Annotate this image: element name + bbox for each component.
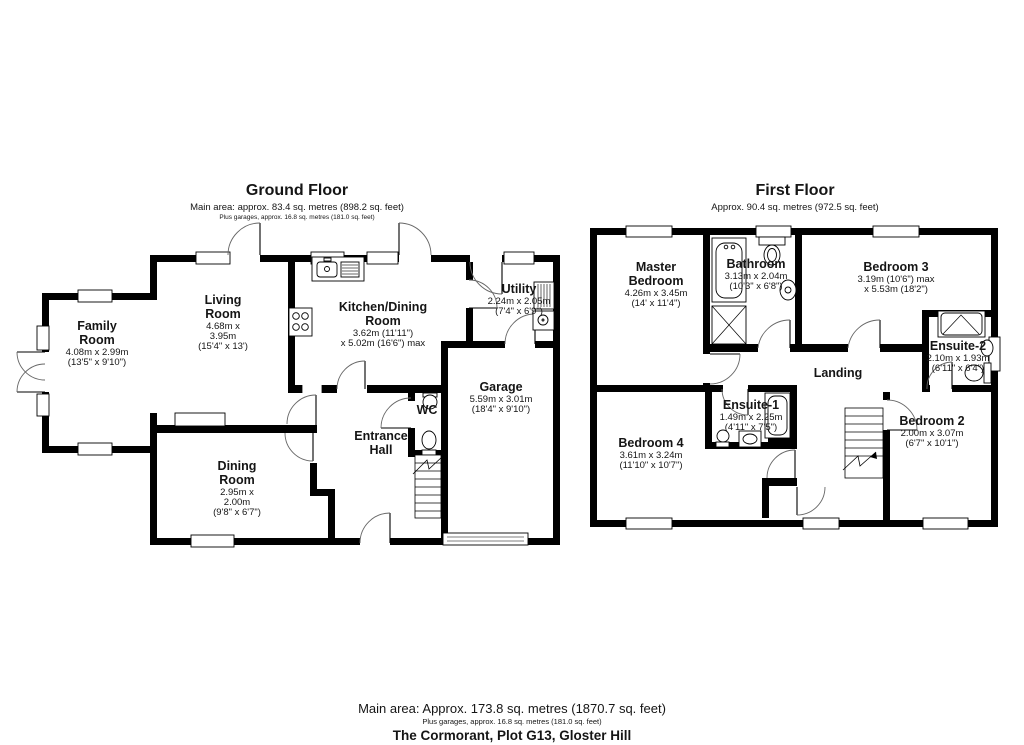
room-label-bedroom-2: Bedroom 2 2.00m x 3.07m (6'7" x 10'1") <box>862 415 1002 450</box>
hob-icon <box>289 308 312 336</box>
room-dims-imperial: (13'5" x 9'10") <box>62 358 132 368</box>
first-floor-subtitle: Approx. 90.4 sq. metres (972.5 sq. feet) <box>711 202 878 213</box>
room-name: Ensuite-2 <box>888 340 1024 354</box>
room-name: Bedroom 2 <box>862 415 1002 429</box>
room-dims-metric: 4.68m x 3.95m <box>193 322 253 343</box>
ground-floor-subtitle-small: Plus garages, approx. 16.8 sq. metres (1… <box>190 214 404 221</box>
room-dims-imperial: (7'4" x 6'9") <box>449 307 589 317</box>
room-dims-imperial: (14' x 11'4") <box>621 299 691 309</box>
room-label-ensuite-1: Ensuite-1 1.49m x 2.25m (4'11" x 7'5") <box>681 399 821 434</box>
room-dims-imperial: (4'11" x 7'5") <box>681 423 821 433</box>
room-name: Entrance Hall <box>350 430 412 458</box>
kitchen-sink-icon <box>312 257 364 281</box>
ground-floor-title: Ground Floor <box>190 182 404 200</box>
bathroom-shower-icon <box>712 306 746 344</box>
room-name: Dining Room <box>207 460 267 488</box>
room-label-family-room: Family Room 4.08m x 2.99m (13'5" x 9'10"… <box>62 320 132 368</box>
room-name: Utility <box>449 283 589 297</box>
room-name: Bedroom 3 <box>826 261 966 275</box>
room-dims-imperial: (6'11" x 6'4") <box>888 364 1024 374</box>
footer-property-name: The Cormorant, Plot G13, Gloster Hill <box>358 728 666 743</box>
room-name: Bathroom <box>686 258 826 272</box>
room-dims-metric: 2.95m x 2.00m <box>207 488 267 509</box>
room-name: Family Room <box>62 320 132 348</box>
room-name: WC <box>397 404 457 418</box>
room-name: Garage <box>431 381 571 395</box>
ground-floor-subtitle: Main area: approx. 83.4 sq. metres (898.… <box>190 202 404 213</box>
sideboard-icon <box>175 413 225 426</box>
room-label-landing: Landing <box>788 367 888 381</box>
garage-door-icon <box>443 533 528 545</box>
room-label-kitchen-dining-room: Kitchen/Dining Room 3.62m (11'11") x 5.0… <box>327 301 439 349</box>
room-label-ensuite-2: Ensuite-2 2.10m x 1.93m (6'11" x 6'4") <box>888 340 1024 375</box>
room-dims-imperial: (11'10" x 10'7") <box>581 461 721 471</box>
footer-garage-area: Plus garages, approx. 16.8 sq. metres (1… <box>358 717 666 726</box>
room-label-master-bedroom: Master Bedroom 4.26m x 3.45m (14' x 11'4… <box>621 261 691 309</box>
room-name: Bedroom 4 <box>581 437 721 451</box>
room-label-living-room: Living Room 4.68m x 3.95m (15'4" x 13') <box>193 294 253 353</box>
room-name: Ensuite-1 <box>681 399 821 413</box>
room-label-bathroom: Bathroom 3.13m x 2.04m (10'3" x 6'8") <box>686 258 826 293</box>
room-dims-imperial: (15'4" x 13') <box>193 342 253 352</box>
room-label-dining-room: Dining Room 2.95m x 2.00m (9'8" x 6'7") <box>207 460 267 519</box>
room-dims-imperial: (9'8" x 6'7") <box>207 508 267 518</box>
first-floor-title: First Floor <box>711 182 878 200</box>
room-dims-imperial: (6'7" x 10'1") <box>862 439 1002 449</box>
room-dims-imperial: x 5.02m (16'6") max <box>327 339 439 349</box>
floorplan-page: Ground Floor Main area: approx. 83.4 sq.… <box>0 0 1024 745</box>
room-name: Landing <box>788 367 888 381</box>
ground-floor-title-block: Ground Floor Main area: approx. 83.4 sq.… <box>190 182 404 221</box>
room-label-utility: Utility 2.24m x 2.05m (7'4" x 6'9") <box>449 283 589 318</box>
room-dims-imperial: x 5.53m (18'2") <box>826 285 966 295</box>
ground-stairs-icon <box>413 455 442 518</box>
room-dims-imperial: (10'3" x 6'8") <box>686 282 826 292</box>
room-name: Kitchen/Dining Room <box>327 301 439 329</box>
room-name: Living Room <box>193 294 253 322</box>
room-name: Master Bedroom <box>621 261 691 289</box>
room-label-bedroom-4: Bedroom 4 3.61m x 3.24m (11'10" x 10'7") <box>581 437 721 472</box>
wc-toilet-icon <box>422 431 436 455</box>
footer-main-area: Main area: Approx. 173.8 sq. metres (187… <box>358 701 666 716</box>
ensuite2-shower-icon <box>938 311 985 337</box>
room-label-bedroom-3: Bedroom 3 3.19m (10'6") max x 5.53m (18'… <box>826 261 966 296</box>
footer-block: Main area: Approx. 173.8 sq. metres (187… <box>358 701 666 743</box>
room-label-wc: WC <box>397 404 457 418</box>
first-floor-title-block: First Floor Approx. 90.4 sq. metres (972… <box>711 182 878 213</box>
room-label-entrance-hall: Entrance Hall <box>350 430 412 458</box>
